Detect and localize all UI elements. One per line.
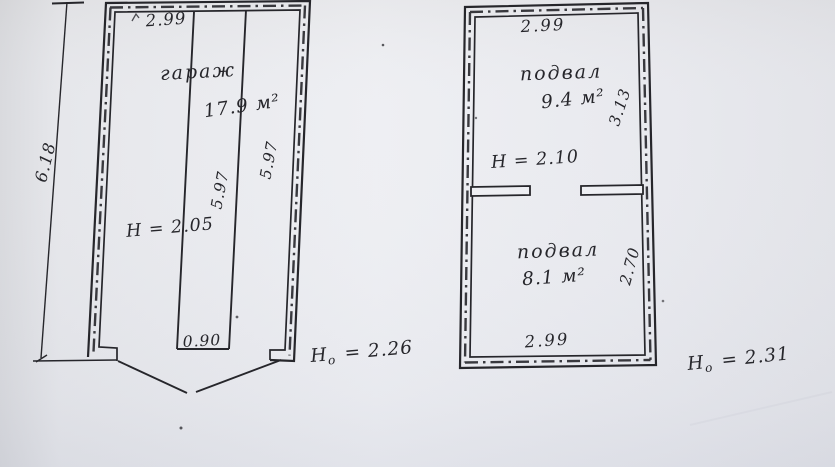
floorplan-svg: 2.99 гараж 17.9 м² 5.97 5.97 H = 2.05 0.… (0, 0, 835, 467)
basement-partition-left (471, 186, 530, 196)
garage-top-width-label: 2.99 (144, 9, 187, 31)
basement-room2-label: подвал (517, 239, 600, 264)
dimension-top-tick (52, 3, 84, 4)
garage-room-label: гараж (159, 59, 236, 85)
dimension-extension-line (33, 360, 117, 361)
garage-pit-width-label: 0.90 (182, 331, 221, 351)
h-symbol: H (685, 352, 705, 375)
basement-room2-area-label: 8.1 м² (521, 265, 586, 290)
h-subscript: o (327, 353, 336, 368)
scanned-floorplan-document: 2.99 гараж 17.9 м² 5.97 5.97 H = 2.05 0.… (0, 0, 835, 467)
basement-bottom-width-label: 2.99 (523, 329, 570, 351)
paper-shading (0, 0, 835, 467)
h-subscript: o (704, 360, 714, 375)
basement-partition-right (581, 185, 643, 195)
basement-room1-label: подвал (520, 61, 603, 86)
basement-top-width-label: 2.99 (519, 15, 566, 36)
h-symbol: H (309, 345, 329, 368)
